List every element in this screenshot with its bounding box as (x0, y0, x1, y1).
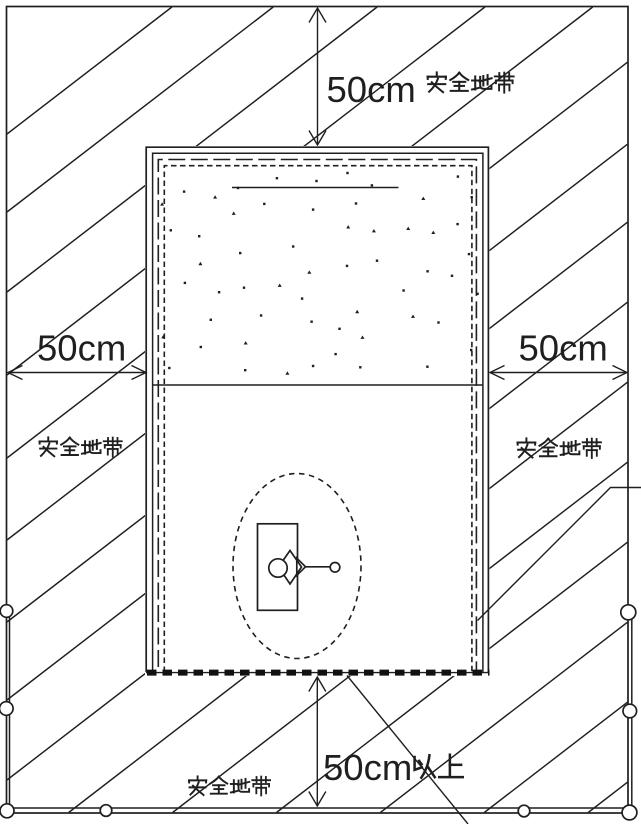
svg-text:50cm: 50cm (323, 747, 412, 788)
svg-text:50cm: 50cm (37, 328, 126, 369)
svg-text:50cm: 50cm (519, 328, 608, 369)
svg-text:50cm: 50cm (327, 69, 416, 110)
